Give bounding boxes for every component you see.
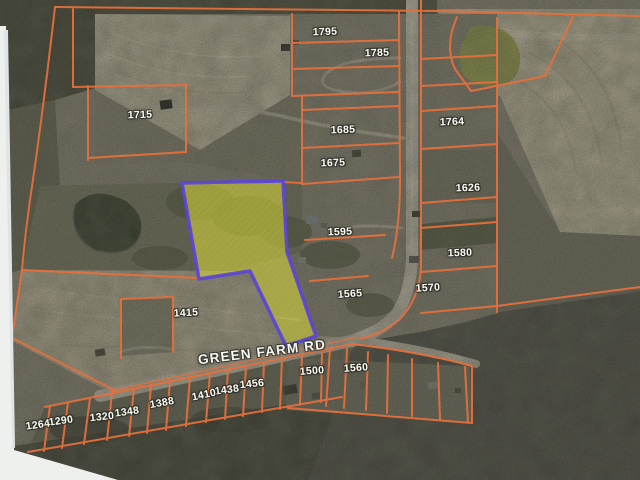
aerial-map-canvas[interactable]	[0, 0, 640, 480]
map-viewport[interactable]: 1795178517151685167517641626159515801570…	[0, 0, 640, 480]
